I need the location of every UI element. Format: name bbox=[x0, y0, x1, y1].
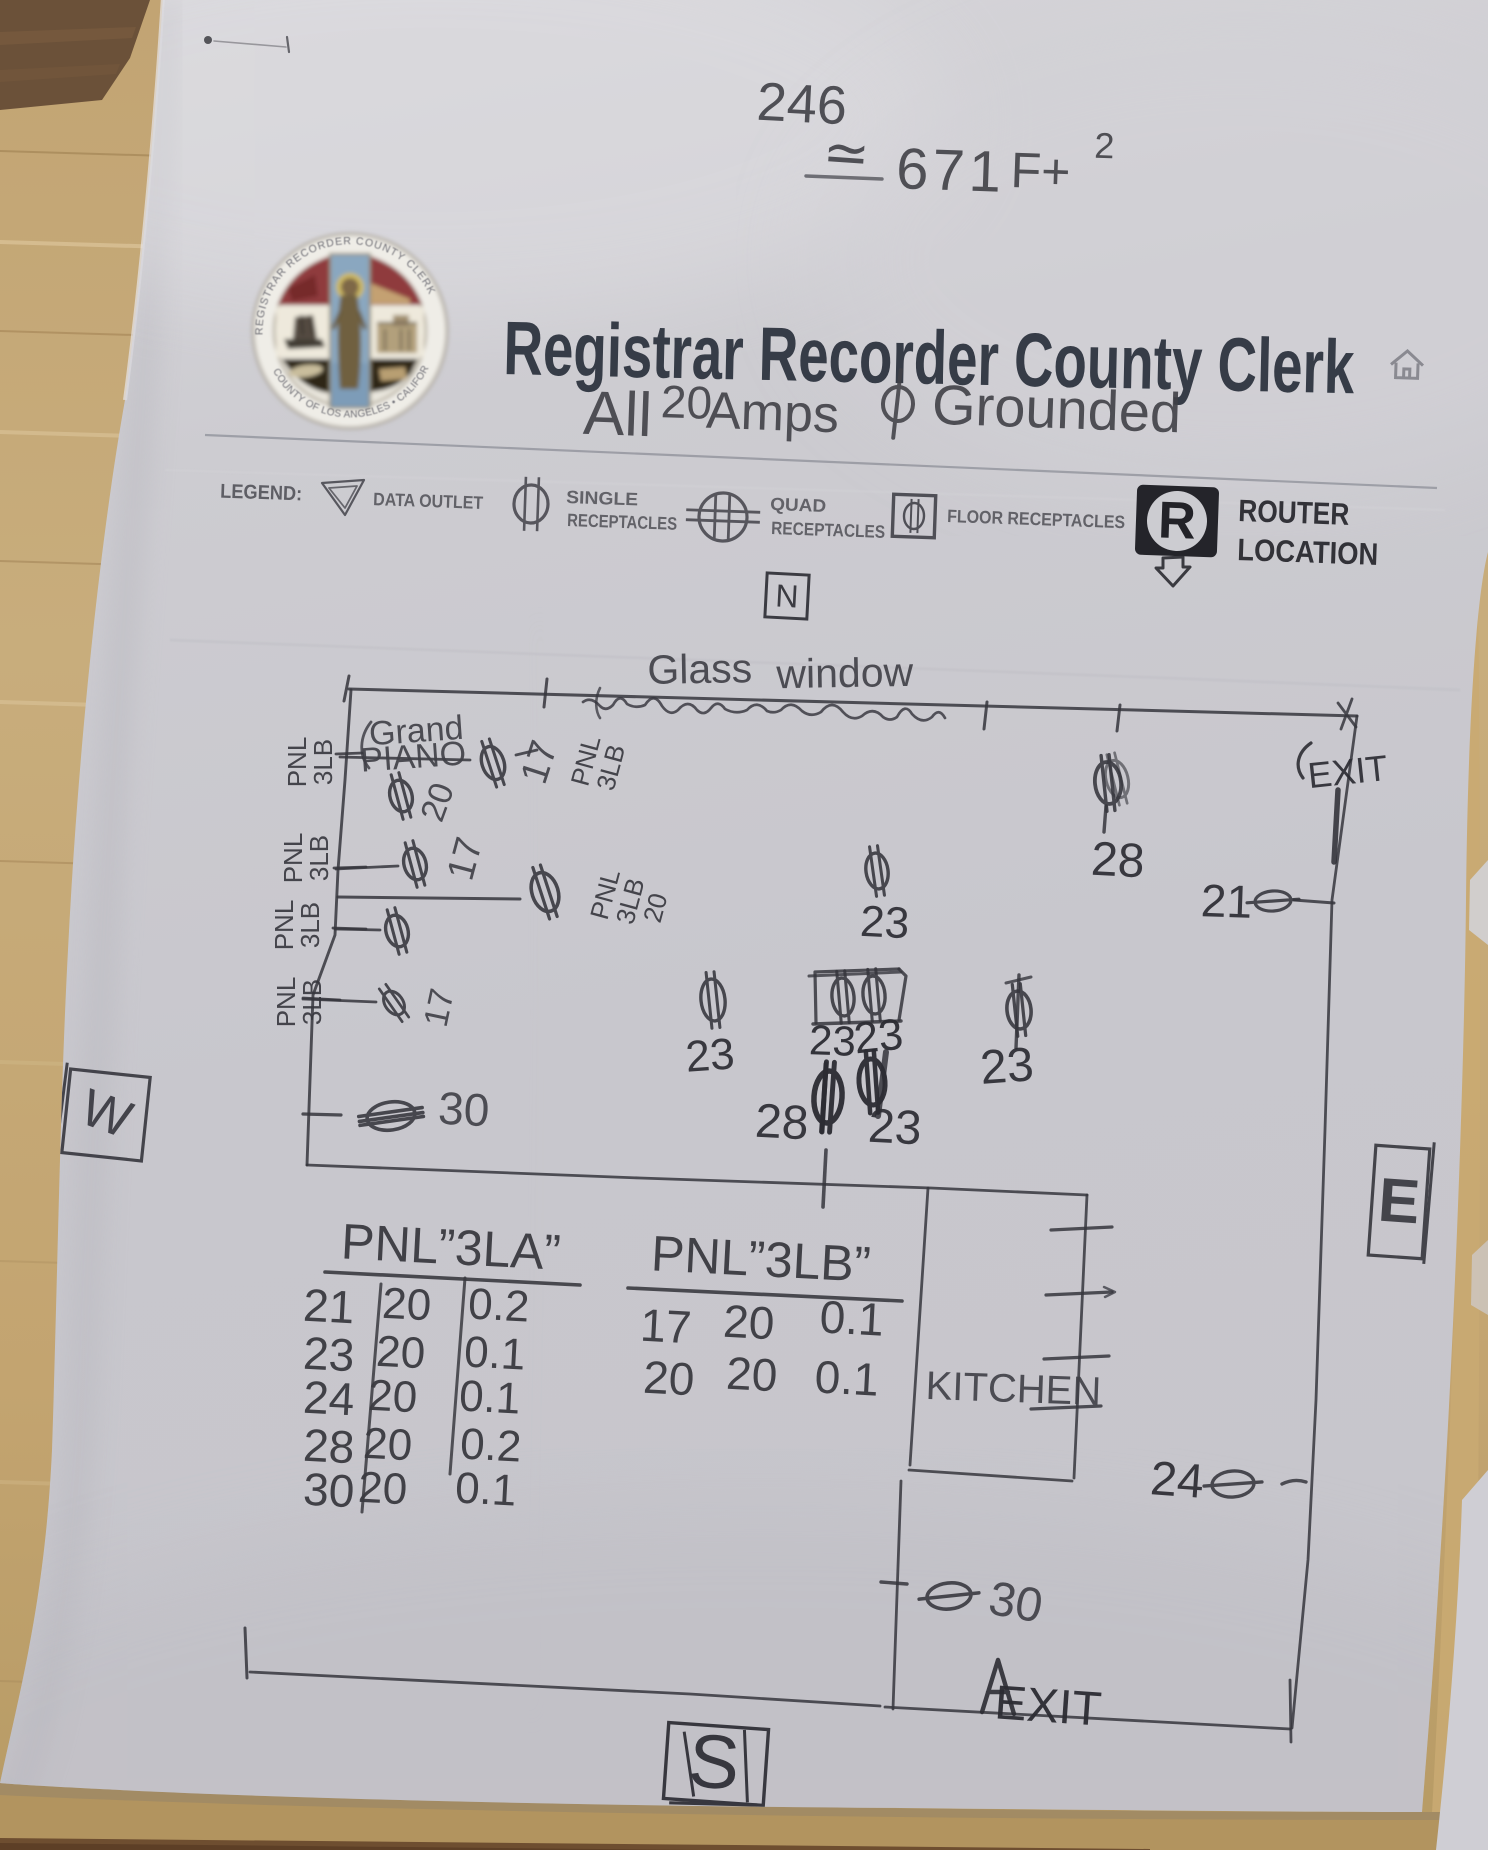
svg-text:23: 23 bbox=[867, 1100, 923, 1156]
svg-text:window: window bbox=[775, 649, 914, 697]
svg-text:30: 30 bbox=[985, 1572, 1047, 1633]
svg-text:2: 2 bbox=[1094, 125, 1115, 167]
svg-text:Glass: Glass bbox=[647, 645, 753, 693]
svg-text:PNL”3LB”: PNL”3LB” bbox=[650, 1225, 872, 1292]
svg-text:20: 20 bbox=[642, 1351, 696, 1406]
svg-text:21: 21 bbox=[1200, 874, 1253, 928]
svg-text:SINGLE: SINGLE bbox=[566, 487, 639, 510]
svg-text:3LB: 3LB bbox=[295, 902, 325, 948]
svg-text:All: All bbox=[582, 379, 653, 450]
svg-text:Grounded: Grounded bbox=[931, 373, 1182, 445]
svg-text:RECEPTACLES: RECEPTACLES bbox=[567, 510, 678, 534]
svg-text:21: 21 bbox=[302, 1279, 356, 1334]
svg-text:20: 20 bbox=[381, 1279, 432, 1330]
svg-text:23: 23 bbox=[808, 1016, 856, 1065]
svg-text:0.2: 0.2 bbox=[467, 1279, 531, 1331]
svg-text:DATA OUTLET: DATA OUTLET bbox=[373, 489, 484, 513]
svg-text:R: R bbox=[1157, 491, 1197, 550]
svg-text:17: 17 bbox=[639, 1299, 693, 1354]
svg-text:23: 23 bbox=[852, 1010, 906, 1064]
svg-text:20: 20 bbox=[367, 1371, 418, 1422]
svg-text:17: 17 bbox=[417, 985, 462, 1030]
svg-text:28: 28 bbox=[754, 1095, 810, 1151]
svg-text:LEGEND:: LEGEND: bbox=[220, 481, 303, 506]
svg-text:28: 28 bbox=[1090, 833, 1146, 889]
svg-text:30: 30 bbox=[302, 1463, 356, 1518]
svg-text:0.1: 0.1 bbox=[814, 1350, 881, 1405]
svg-text:0.1: 0.1 bbox=[819, 1290, 886, 1345]
svg-text:30: 30 bbox=[437, 1082, 491, 1137]
svg-text:EXIT: EXIT bbox=[1306, 747, 1390, 796]
svg-text:671: 671 bbox=[895, 136, 1006, 205]
svg-text:3LB: 3LB bbox=[304, 835, 334, 881]
svg-text:RECEPTACLES: RECEPTACLES bbox=[771, 518, 886, 542]
svg-text:0.1: 0.1 bbox=[454, 1463, 518, 1515]
svg-text:20: 20 bbox=[722, 1295, 776, 1350]
svg-text:Amps: Amps bbox=[705, 382, 840, 445]
svg-text:EXIT: EXIT bbox=[993, 1676, 1103, 1736]
svg-text:PIANO: PIANO bbox=[359, 734, 467, 779]
svg-text:QUAD: QUAD bbox=[770, 494, 827, 516]
svg-text:E: E bbox=[1376, 1166, 1422, 1238]
svg-text:24: 24 bbox=[1149, 1452, 1206, 1509]
svg-text:ROUTER: ROUTER bbox=[1238, 493, 1350, 532]
svg-text:KITCHEN: KITCHEN bbox=[925, 1364, 1102, 1414]
svg-text:PNL”3LA”: PNL”3LA” bbox=[340, 1213, 562, 1280]
svg-text:F+: F+ bbox=[1010, 142, 1072, 200]
svg-text:3LB: 3LB bbox=[308, 739, 338, 785]
svg-text:24: 24 bbox=[302, 1371, 356, 1426]
svg-text:20: 20 bbox=[725, 1347, 779, 1402]
svg-text:20: 20 bbox=[357, 1463, 408, 1514]
svg-text:23: 23 bbox=[859, 897, 910, 948]
svg-text:3LB: 3LB bbox=[297, 979, 327, 1025]
svg-text:23: 23 bbox=[684, 1029, 736, 1081]
svg-text:N: N bbox=[775, 577, 800, 614]
svg-text:23: 23 bbox=[978, 1038, 1035, 1095]
svg-text:LOCATION: LOCATION bbox=[1237, 532, 1379, 572]
svg-text:0.1: 0.1 bbox=[458, 1371, 522, 1423]
